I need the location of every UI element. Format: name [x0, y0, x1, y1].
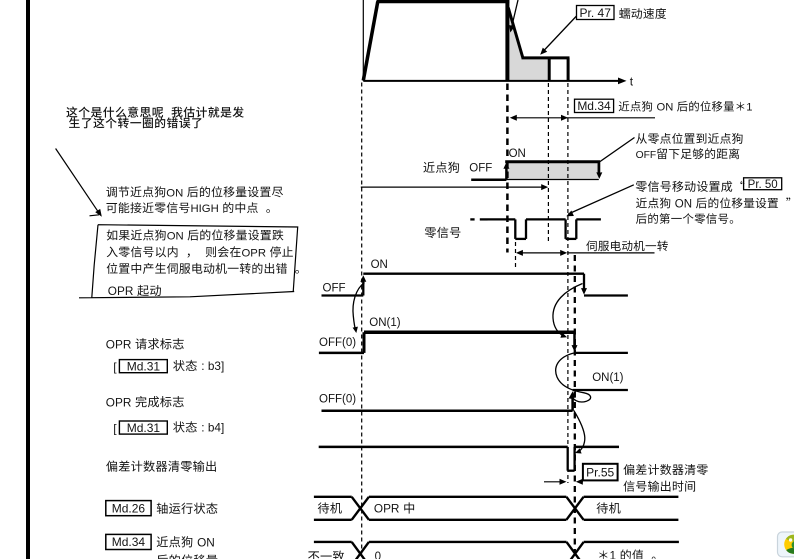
svg-text:ON: ON	[657, 102, 674, 114]
svg-text:0: 0	[375, 551, 381, 559]
svg-text:ON: ON	[509, 148, 526, 160]
svg-text:Md.34: Md.34	[112, 535, 146, 549]
svg-text:Md.31: Md.31	[127, 421, 161, 435]
svg-text:: b3]: : b3]	[201, 359, 224, 373]
svg-text:ON: ON	[197, 535, 215, 549]
svg-text:ON(1): ON(1)	[592, 372, 623, 384]
svg-text:Pr. 47: Pr. 47	[580, 6, 612, 20]
svg-text:Md.26: Md.26	[112, 501, 146, 515]
svg-text:OFF: OFF	[469, 162, 492, 174]
svg-text:OPR: OPR	[108, 284, 134, 298]
svg-text:OFF: OFF	[636, 150, 657, 161]
svg-text:OFF: OFF	[323, 283, 346, 295]
svg-text:OPR: OPR	[106, 395, 132, 409]
svg-text:OPR: OPR	[242, 247, 266, 259]
svg-text:OPR: OPR	[374, 502, 400, 516]
svg-text:Pr. 50: Pr. 50	[748, 179, 778, 191]
svg-text:Md.31: Md.31	[127, 359, 161, 373]
svg-text:: b4]: : b4]	[201, 421, 224, 435]
svg-text:1: 1	[746, 102, 752, 114]
svg-text:OFF(0): OFF(0)	[319, 337, 356, 349]
svg-text:ON: ON	[371, 259, 388, 271]
svg-text:ON: ON	[675, 198, 692, 210]
svg-text:OPR: OPR	[106, 337, 132, 351]
svg-text:ON(1): ON(1)	[369, 317, 400, 329]
svg-text:Pr.55: Pr.55	[586, 465, 614, 479]
svg-text:ON: ON	[166, 187, 183, 199]
svg-text:1: 1	[610, 549, 617, 559]
svg-text:ON: ON	[167, 231, 184, 243]
svg-text:HIGH: HIGH	[191, 203, 219, 215]
svg-text:Md.34: Md.34	[577, 99, 611, 113]
svg-text:OFF(0): OFF(0)	[319, 393, 356, 405]
